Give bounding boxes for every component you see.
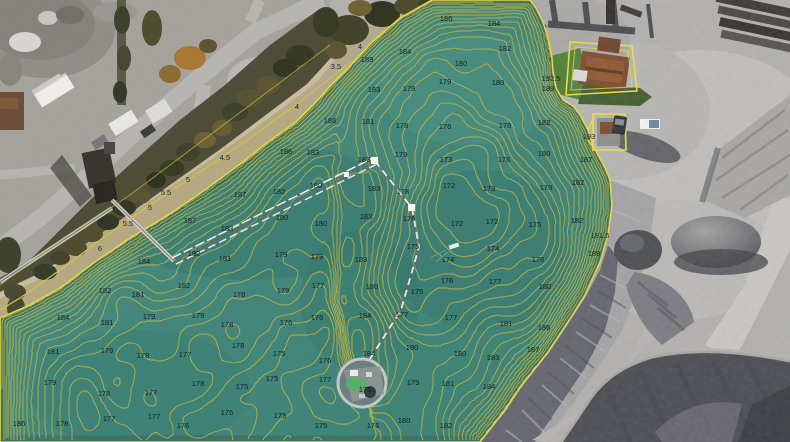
svg-text:180: 180 [454,349,467,358]
svg-text:180: 180 [406,343,419,352]
svg-text:180: 180 [455,59,468,68]
svg-text:189: 189 [361,55,374,64]
svg-text:181: 181 [219,254,232,263]
svg-text:180: 180 [538,149,551,158]
svg-text:178: 178 [396,121,409,130]
svg-text:182: 182 [178,281,191,290]
svg-text:174: 174 [487,244,500,253]
svg-text:175: 175 [411,287,424,296]
svg-text:175: 175 [529,220,542,229]
svg-text:178: 178 [56,419,69,428]
svg-text:179: 179 [44,378,57,387]
svg-text:180: 180 [539,282,552,291]
svg-text:179: 179 [395,150,408,159]
svg-text:174: 174 [442,255,455,264]
svg-text:178: 178 [137,351,150,360]
svg-text:176: 176 [319,356,332,365]
svg-text:178: 178 [540,183,553,192]
svg-text:180: 180 [276,213,289,222]
svg-text:172: 172 [486,217,499,226]
svg-text:173: 173 [440,155,453,164]
svg-text:183: 183 [221,224,234,233]
svg-text:189: 189 [588,249,601,258]
svg-text:176: 176 [403,214,416,223]
svg-text:183: 183 [358,155,371,164]
svg-text:177: 177 [319,375,332,384]
svg-text:182: 182 [571,216,584,225]
svg-text:181: 181 [442,379,455,388]
svg-text:179: 179 [407,378,420,387]
svg-text:186: 186 [280,147,293,156]
svg-text:178: 178 [98,389,111,398]
svg-text:176: 176 [280,318,293,327]
svg-text:179: 179 [439,77,452,86]
svg-text:176: 176 [532,255,545,264]
svg-text:184: 184 [359,311,372,320]
svg-text:177: 177 [312,281,325,290]
svg-text:187: 187 [527,345,540,354]
svg-text:182: 182 [499,44,512,53]
svg-text:176: 176 [221,408,234,417]
svg-text:179: 179 [275,250,288,259]
svg-text:177: 177 [179,350,192,359]
svg-text:182: 182 [273,187,286,196]
svg-text:179: 179 [311,252,324,261]
svg-text:179: 179 [277,286,290,295]
svg-text:176: 176 [439,122,452,131]
svg-text:177: 177 [103,414,116,423]
svg-text:182: 182 [99,286,112,295]
svg-text:180: 180 [315,219,328,228]
svg-text:180: 180 [398,416,411,425]
svg-text:184: 184 [488,19,501,28]
svg-text:183: 183 [487,353,500,362]
svg-text:177: 177 [489,277,502,286]
svg-text:183: 183 [368,184,381,193]
svg-text:176: 176 [498,155,511,164]
svg-text:175: 175 [236,382,249,391]
svg-text:184: 184 [399,47,412,56]
svg-text:179: 179 [143,312,156,321]
svg-text:187: 187 [184,216,197,225]
svg-text:187: 187 [580,155,593,164]
svg-text:178: 178 [192,379,205,388]
svg-text:177: 177 [145,388,158,397]
svg-text:178: 178 [233,290,246,299]
svg-text:186: 186 [324,116,337,125]
svg-text:175: 175 [274,411,287,420]
svg-text:175: 175 [315,421,328,430]
svg-text:184: 184 [483,382,496,391]
svg-text:181: 181 [362,117,375,126]
svg-text:186: 186 [538,323,551,332]
svg-text:177: 177 [445,313,458,322]
svg-text:183: 183 [360,212,373,221]
svg-text:177: 177 [148,412,161,421]
svg-text:183: 183 [355,255,368,264]
svg-text:172: 172 [443,181,456,190]
svg-text:184: 184 [57,313,70,322]
svg-text:181: 181 [101,318,114,327]
svg-text:184: 184 [138,257,151,266]
svg-text:179: 179 [101,346,114,355]
svg-text:175: 175 [359,385,372,394]
svg-text:181: 181 [500,319,513,328]
svg-text:186: 186 [440,14,453,23]
svg-text:180: 180 [310,181,323,190]
svg-text:179: 179 [192,311,205,320]
svg-text:176: 176 [311,313,324,322]
svg-text:175: 175 [407,242,420,251]
svg-text:182: 182 [572,178,585,187]
svg-text:176: 176 [177,421,190,430]
svg-text:178: 178 [232,341,245,350]
svg-text:184: 184 [363,349,376,358]
svg-text:181: 181 [132,290,145,299]
svg-text:182: 182 [440,421,453,430]
svg-text:178: 178 [499,121,512,130]
svg-text:189: 189 [542,84,555,93]
svg-text:175: 175 [273,349,286,358]
svg-text:173: 173 [483,184,496,193]
svg-text:187: 187 [234,190,247,199]
svg-text:180: 180 [492,78,505,87]
svg-text:178: 178 [397,187,410,196]
svg-text:177: 177 [396,310,409,319]
svg-text:183: 183 [307,148,320,157]
svg-text:175: 175 [266,374,279,383]
svg-text:180: 180 [366,282,379,291]
svg-text:176: 176 [367,421,380,430]
svg-text:179: 179 [403,84,416,93]
svg-text:186: 186 [13,419,26,428]
svg-text:182: 182 [188,249,201,258]
svg-text:178: 178 [221,320,234,329]
svg-text:181: 181 [47,347,60,356]
svg-text:172: 172 [451,219,464,228]
svg-text:182: 182 [538,118,551,127]
svg-text:183: 183 [368,85,381,94]
svg-text:176: 176 [441,276,454,285]
